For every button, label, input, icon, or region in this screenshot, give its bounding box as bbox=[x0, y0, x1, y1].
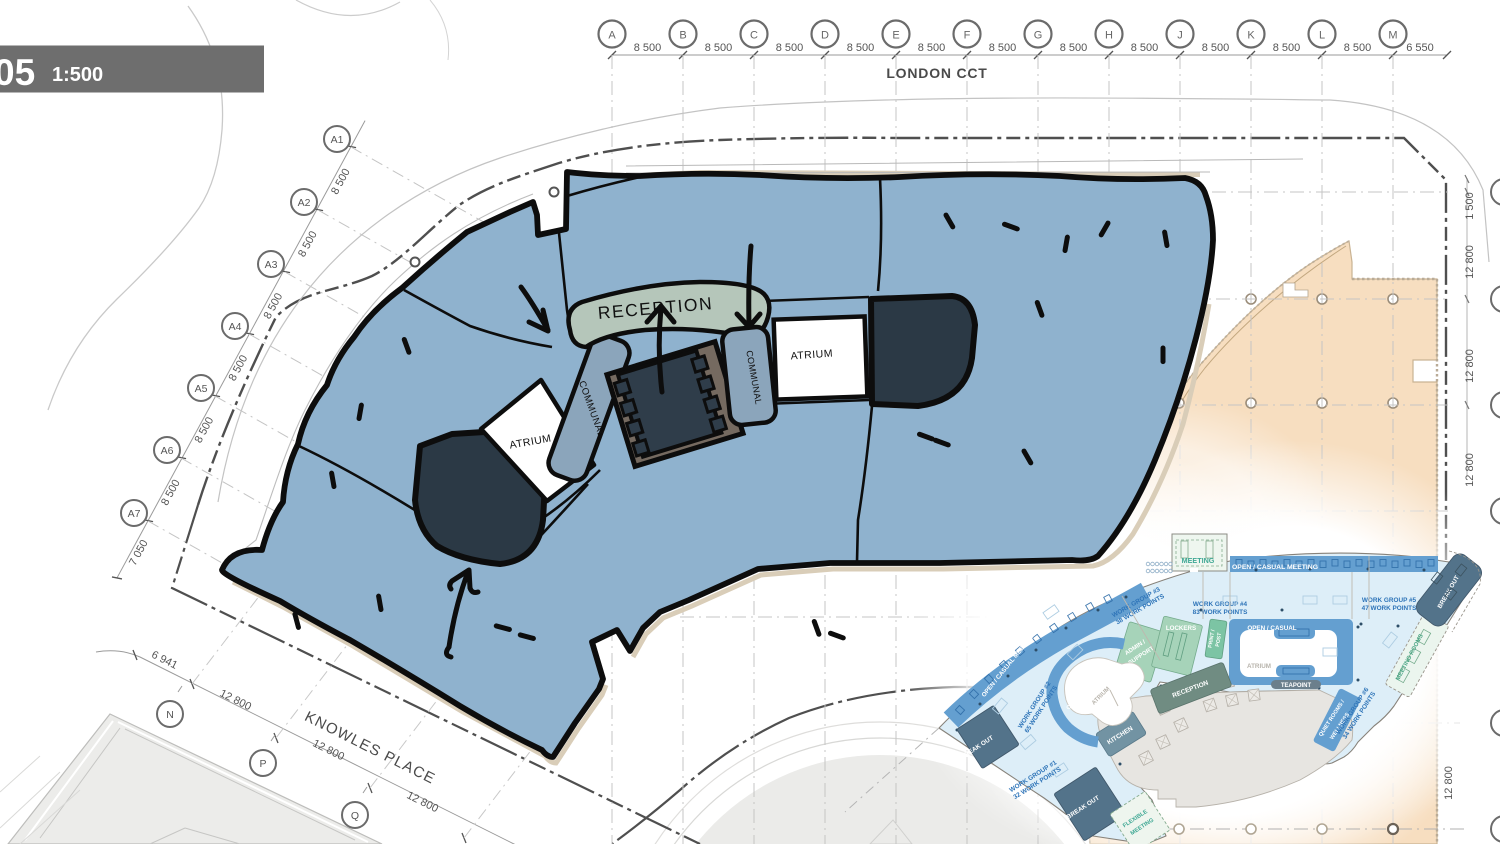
svg-text:A1: A1 bbox=[331, 134, 344, 146]
svg-text:L: L bbox=[1319, 30, 1325, 42]
svg-text:A2: A2 bbox=[298, 197, 311, 209]
svg-text:8 500: 8 500 bbox=[847, 42, 875, 54]
svg-text:ATRIUM: ATRIUM bbox=[1247, 663, 1271, 670]
svg-text:LONDON CCT: LONDON CCT bbox=[886, 65, 987, 81]
svg-text:8 500: 8 500 bbox=[705, 42, 733, 54]
svg-text:C: C bbox=[750, 30, 758, 42]
svg-text:A6: A6 bbox=[161, 445, 174, 457]
svg-text:8 500: 8 500 bbox=[918, 42, 946, 54]
svg-text:Q: Q bbox=[351, 810, 359, 822]
svg-text:47 WORK POINTS: 47 WORK POINTS bbox=[1362, 605, 1417, 612]
svg-text:8 500: 8 500 bbox=[1344, 42, 1372, 54]
svg-text:12 800: 12 800 bbox=[1464, 349, 1476, 383]
svg-text:A7: A7 bbox=[128, 508, 141, 520]
svg-text:N: N bbox=[166, 709, 174, 721]
svg-text:K: K bbox=[1247, 30, 1255, 42]
svg-text:12 800: 12 800 bbox=[1464, 453, 1476, 487]
svg-text:WORK GROUP #5: WORK GROUP #5 bbox=[1362, 597, 1417, 604]
svg-text:05: 05 bbox=[0, 52, 35, 93]
svg-text:8 500: 8 500 bbox=[1273, 42, 1301, 54]
svg-text:B: B bbox=[679, 30, 686, 42]
svg-text:A3: A3 bbox=[265, 259, 278, 271]
svg-text:F: F bbox=[964, 30, 971, 42]
svg-text:8 500: 8 500 bbox=[1202, 42, 1230, 54]
svg-text:83 WORK POINTS: 83 WORK POINTS bbox=[1193, 609, 1248, 616]
svg-text:12 800: 12 800 bbox=[1443, 766, 1455, 800]
svg-text:E: E bbox=[892, 30, 899, 42]
svg-text:H: H bbox=[1105, 30, 1113, 42]
svg-text:6 550: 6 550 bbox=[1406, 42, 1434, 54]
svg-text:LOCKERS: LOCKERS bbox=[1166, 625, 1196, 632]
svg-text:TEAPOINT: TEAPOINT bbox=[1281, 683, 1312, 689]
svg-text:P: P bbox=[259, 758, 266, 770]
svg-text:12 800: 12 800 bbox=[1464, 245, 1476, 279]
svg-text:A: A bbox=[608, 30, 616, 42]
svg-text:M: M bbox=[1388, 30, 1397, 42]
svg-text:OPEN / CASUAL: OPEN / CASUAL bbox=[1247, 625, 1296, 632]
svg-text:MEETING: MEETING bbox=[1182, 556, 1215, 565]
svg-text:A4: A4 bbox=[229, 321, 242, 333]
svg-text:J: J bbox=[1177, 30, 1183, 42]
svg-text:1:500: 1:500 bbox=[52, 64, 103, 86]
svg-text:1 500: 1 500 bbox=[1464, 192, 1476, 220]
svg-text:G: G bbox=[1034, 30, 1043, 42]
svg-text:8 500: 8 500 bbox=[634, 42, 662, 54]
svg-text:D: D bbox=[821, 30, 829, 42]
svg-text:OPEN / CASUAL MEETING: OPEN / CASUAL MEETING bbox=[1232, 564, 1318, 571]
svg-text:8 500: 8 500 bbox=[989, 42, 1017, 54]
svg-text:WORK GROUP #4: WORK GROUP #4 bbox=[1193, 601, 1248, 608]
svg-text:8 500: 8 500 bbox=[776, 42, 804, 54]
svg-text:A5: A5 bbox=[195, 383, 208, 395]
svg-text:8 500: 8 500 bbox=[1060, 42, 1088, 54]
svg-text:8 500: 8 500 bbox=[1131, 42, 1159, 54]
